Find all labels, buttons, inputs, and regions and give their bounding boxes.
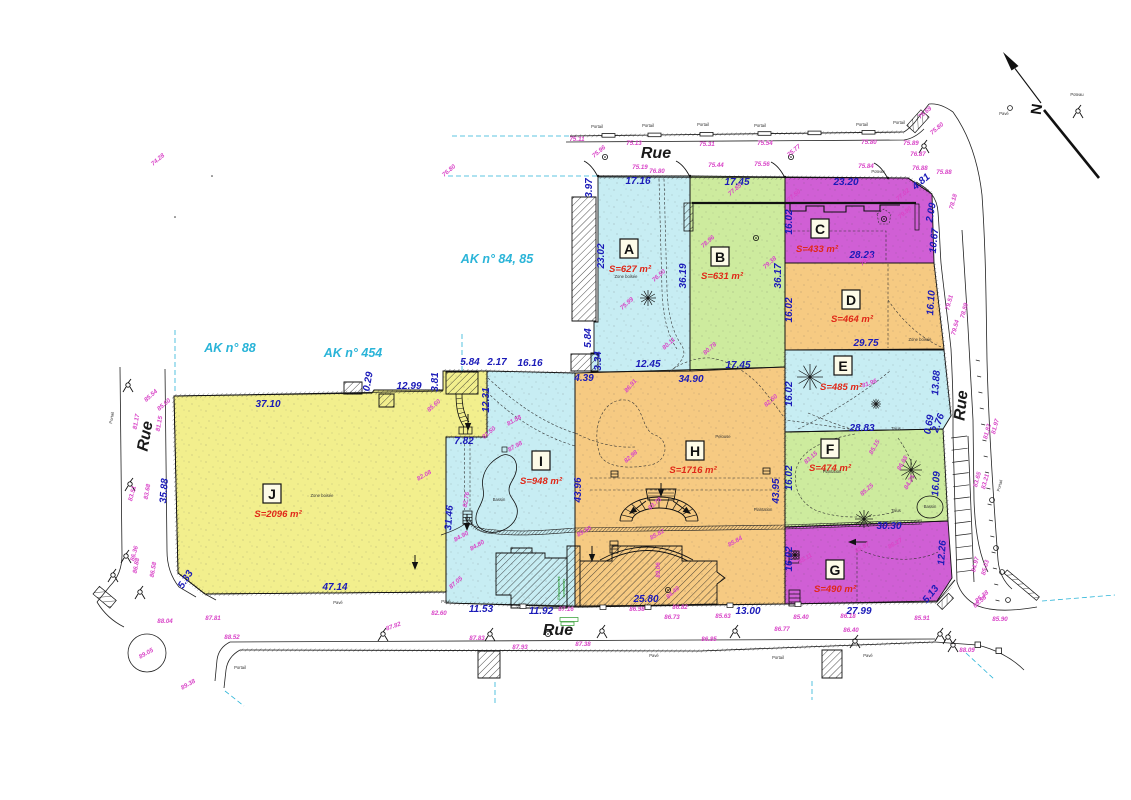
svg-text:2.17: 2.17 <box>486 357 507 368</box>
svg-text:16.02: 16.02 <box>784 546 795 571</box>
svg-text:47.14: 47.14 <box>321 582 347 593</box>
svg-text:76.88: 76.88 <box>912 165 928 172</box>
svg-text:G: G <box>830 562 841 578</box>
svg-text:3.34: 3.34 <box>593 351 604 371</box>
svg-text:F: F <box>826 441 835 457</box>
svg-text:43.96: 43.96 <box>573 477 584 503</box>
svg-text:16.16: 16.16 <box>517 358 542 369</box>
svg-text:C: C <box>815 221 825 237</box>
svg-text:86.98: 86.98 <box>629 606 645 613</box>
svg-text:11.92: 11.92 <box>529 606 554 617</box>
svg-text:Poteau: Poteau <box>871 169 885 174</box>
svg-text:86.85: 86.85 <box>701 636 717 643</box>
svg-text:75.19: 75.19 <box>632 164 648 171</box>
svg-text:A: A <box>624 241 634 257</box>
svg-text:S=433 m²: S=433 m² <box>796 244 839 255</box>
svg-text:Zone boisée: Zone boisée <box>908 337 932 342</box>
svg-text:16.02: 16.02 <box>784 209 795 234</box>
svg-text:87.16: 87.16 <box>558 606 574 613</box>
svg-text:75.89: 75.89 <box>903 140 919 147</box>
svg-text:Rue: Rue <box>641 145 671 162</box>
svg-text:13.00: 13.00 <box>735 606 760 617</box>
svg-text:E: E <box>838 358 847 374</box>
svg-text:Talus: Talus <box>891 508 901 513</box>
svg-text:88.52: 88.52 <box>224 634 240 641</box>
svg-text:Pelouse: Pelouse <box>715 434 731 439</box>
svg-text:Portail: Portail <box>772 655 784 660</box>
svg-text:75.31: 75.31 <box>699 141 715 148</box>
svg-text:conteneurs: conteneurs <box>562 579 566 598</box>
svg-text:Rue: Rue <box>951 390 971 422</box>
svg-text:17.45: 17.45 <box>725 360 750 371</box>
svg-text:75.11: 75.11 <box>569 136 585 143</box>
svg-text:Zone boisée: Zone boisée <box>614 274 638 279</box>
svg-text:S=2096 m²: S=2096 m² <box>254 509 302 520</box>
svg-text:J: J <box>268 486 276 502</box>
svg-text:5.84: 5.84 <box>460 357 480 368</box>
svg-text:86.82: 86.82 <box>672 604 688 611</box>
svg-text:S=485 m²: S=485 m² <box>820 382 863 393</box>
svg-text:13.88: 13.88 <box>930 370 943 396</box>
svg-text:Portail: Portail <box>591 124 603 129</box>
svg-text:Talus: Talus <box>891 426 901 431</box>
svg-text:B: B <box>715 249 725 265</box>
svg-text:Pavé: Pavé <box>863 653 873 658</box>
svg-text:28.83: 28.83 <box>848 423 874 434</box>
svg-text:75.44: 75.44 <box>708 162 724 169</box>
svg-text:S=464 m²: S=464 m² <box>831 314 874 325</box>
svg-text:87.81: 87.81 <box>205 615 221 622</box>
svg-text:Portail: Portail <box>642 123 654 128</box>
svg-text:88.04: 88.04 <box>157 618 173 625</box>
svg-text:11.53: 11.53 <box>469 604 494 615</box>
svg-text:30.30: 30.30 <box>876 521 901 532</box>
svg-text:86.77: 86.77 <box>774 626 790 633</box>
svg-text:Poteau: Poteau <box>1070 92 1084 97</box>
svg-text:16.02: 16.02 <box>784 297 795 322</box>
svg-text:43.95: 43.95 <box>771 478 782 504</box>
svg-text:37.10: 37.10 <box>255 399 280 410</box>
svg-text:36.17: 36.17 <box>773 263 784 288</box>
svg-text:3.81: 3.81 <box>430 372 441 392</box>
svg-text:88.09: 88.09 <box>959 647 975 654</box>
svg-text:85.90: 85.90 <box>992 616 1008 623</box>
svg-text:85.91: 85.91 <box>914 615 930 622</box>
svg-text:7.82: 7.82 <box>454 436 474 447</box>
svg-text:12.99: 12.99 <box>396 381 421 392</box>
svg-text:75.88: 75.88 <box>936 169 952 176</box>
svg-text:S=948 m²: S=948 m² <box>520 476 563 487</box>
svg-text:12.26: 12.26 <box>936 540 949 566</box>
svg-text:Pavé: Pavé <box>441 599 451 604</box>
svg-text:Bassin: Bassin <box>493 497 506 502</box>
svg-text:25.80: 25.80 <box>632 594 658 605</box>
svg-text:12.31: 12.31 <box>481 387 492 412</box>
svg-text:16.10: 16.10 <box>925 290 938 316</box>
svg-text:Portail: Portail <box>697 122 709 127</box>
svg-text:89.06: 89.06 <box>655 562 662 578</box>
svg-text:S=490 m²: S=490 m² <box>814 584 857 595</box>
svg-text:16.09: 16.09 <box>930 471 943 497</box>
svg-text:Zone boisée: Zone boisée <box>310 493 334 498</box>
svg-text:75.56: 75.56 <box>754 161 770 168</box>
svg-text:85.63: 85.63 <box>715 613 731 620</box>
svg-text:23.20: 23.20 <box>832 177 858 188</box>
svg-text:82.60: 82.60 <box>431 610 447 617</box>
svg-text:31.46: 31.46 <box>443 505 456 531</box>
svg-text:AK n° 454: AK n° 454 <box>323 346 383 360</box>
svg-text:S=1716 m²: S=1716 m² <box>669 465 717 476</box>
svg-text:86.40: 86.40 <box>843 627 859 634</box>
svg-text:AK n° 88: AK n° 88 <box>203 341 256 355</box>
svg-text:12.45: 12.45 <box>635 359 660 370</box>
svg-text:34.90: 34.90 <box>678 374 703 385</box>
svg-text:5.84: 5.84 <box>583 328 594 348</box>
svg-text:76.80: 76.80 <box>649 168 665 175</box>
svg-text:86.18: 86.18 <box>840 613 856 620</box>
svg-text:87.38: 87.38 <box>575 641 591 648</box>
svg-text:75.80: 75.80 <box>861 139 877 146</box>
svg-text:Pavé: Pavé <box>649 653 659 658</box>
svg-text:87.83: 87.83 <box>469 635 485 642</box>
svg-text:Emplacement: Emplacement <box>557 575 561 599</box>
svg-text:D: D <box>846 292 856 308</box>
svg-text:76.87: 76.87 <box>910 151 926 158</box>
svg-text:87.93: 87.93 <box>512 644 528 651</box>
svg-text:86.73: 86.73 <box>664 614 680 621</box>
svg-text:4.39: 4.39 <box>573 373 594 384</box>
svg-text:AK n° 84, 85: AK n° 84, 85 <box>460 252 534 266</box>
svg-text:75.54: 75.54 <box>757 140 773 147</box>
svg-text:Plantation: Plantation <box>823 469 842 474</box>
svg-text:H: H <box>690 443 700 459</box>
svg-text:Pavé: Pavé <box>999 111 1009 116</box>
svg-text:3.97: 3.97 <box>584 178 595 198</box>
svg-text:Plantation: Plantation <box>754 507 773 512</box>
svg-text:Rue: Rue <box>543 622 573 639</box>
svg-text:17.16: 17.16 <box>625 176 650 187</box>
svg-text:29.75: 29.75 <box>852 338 878 349</box>
svg-text:16.02: 16.02 <box>784 465 795 490</box>
svg-text:Pavé: Pavé <box>333 600 343 605</box>
svg-text:36.19: 36.19 <box>678 263 689 288</box>
svg-text:Portail: Portail <box>754 123 766 128</box>
svg-text:16.02: 16.02 <box>784 381 795 406</box>
svg-text:85.40: 85.40 <box>793 614 809 621</box>
svg-text:23.02: 23.02 <box>596 243 607 269</box>
svg-text:Bassin: Bassin <box>924 504 937 509</box>
svg-text:75.13: 75.13 <box>626 140 642 147</box>
svg-text:I: I <box>539 453 543 469</box>
svg-text:S=631 m²: S=631 m² <box>701 271 744 282</box>
svg-text:Portail: Portail <box>856 122 868 127</box>
svg-text:35.88: 35.88 <box>158 478 171 504</box>
svg-text:Portail: Portail <box>893 120 905 125</box>
svg-text:Portail: Portail <box>234 665 246 670</box>
